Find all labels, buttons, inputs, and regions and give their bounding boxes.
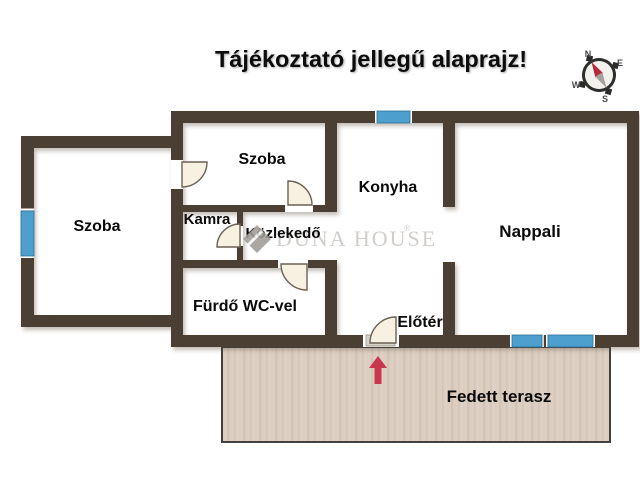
compass-label-n: N — [585, 49, 592, 59]
door-arc — [281, 264, 307, 290]
terrace-area — [222, 347, 610, 442]
compass-label-e: E — [617, 58, 623, 68]
registered-trademark-icon: ® — [404, 223, 413, 233]
window — [377, 111, 410, 123]
room-label-fedett-terasz: Fedett terasz — [447, 387, 552, 406]
compass-label-w: W — [572, 80, 581, 90]
wall-segment — [171, 260, 337, 268]
door-opening — [171, 160, 183, 189]
window — [21, 211, 34, 256]
page-title: Tájékoztató jellegű alaprajz! — [215, 46, 527, 72]
wall-segment — [627, 111, 639, 347]
wall-segment — [443, 111, 455, 207]
room-label-nappali: Nappali — [499, 222, 560, 241]
window — [512, 335, 542, 347]
door-arc — [182, 162, 207, 187]
room-label-szoba-left: Szoba — [73, 218, 120, 235]
wall-segment — [21, 315, 183, 327]
wall-segment — [325, 260, 337, 347]
window — [548, 335, 593, 347]
room-label-szoba-top: Szoba — [238, 151, 285, 168]
room-label-konyha: Konyha — [359, 179, 418, 196]
door-arc — [288, 181, 312, 205]
room-label-furdo-wc: Fürdő WC-vel — [193, 298, 297, 315]
room-label-eloter: Előtér — [397, 314, 442, 331]
window-frame-gap — [546, 335, 548, 347]
room-label-kamra: Kamra — [184, 211, 231, 228]
wall-segment — [325, 111, 337, 212]
floor-plan-page: Tájékoztató jellegű alaprajz! — [0, 0, 640, 480]
wall-segment — [443, 262, 455, 347]
compass-label-s: S — [602, 94, 608, 104]
floor-plan-drawing: Tájékoztató jellegű alaprajz! — [0, 0, 640, 480]
wall-segment — [21, 136, 183, 148]
door-arc — [370, 317, 396, 343]
compass-icon: N E S W — [567, 43, 631, 107]
door-opening — [285, 205, 313, 212]
compass-needle-group — [567, 43, 631, 107]
window-frame-gap — [21, 209, 34, 211]
